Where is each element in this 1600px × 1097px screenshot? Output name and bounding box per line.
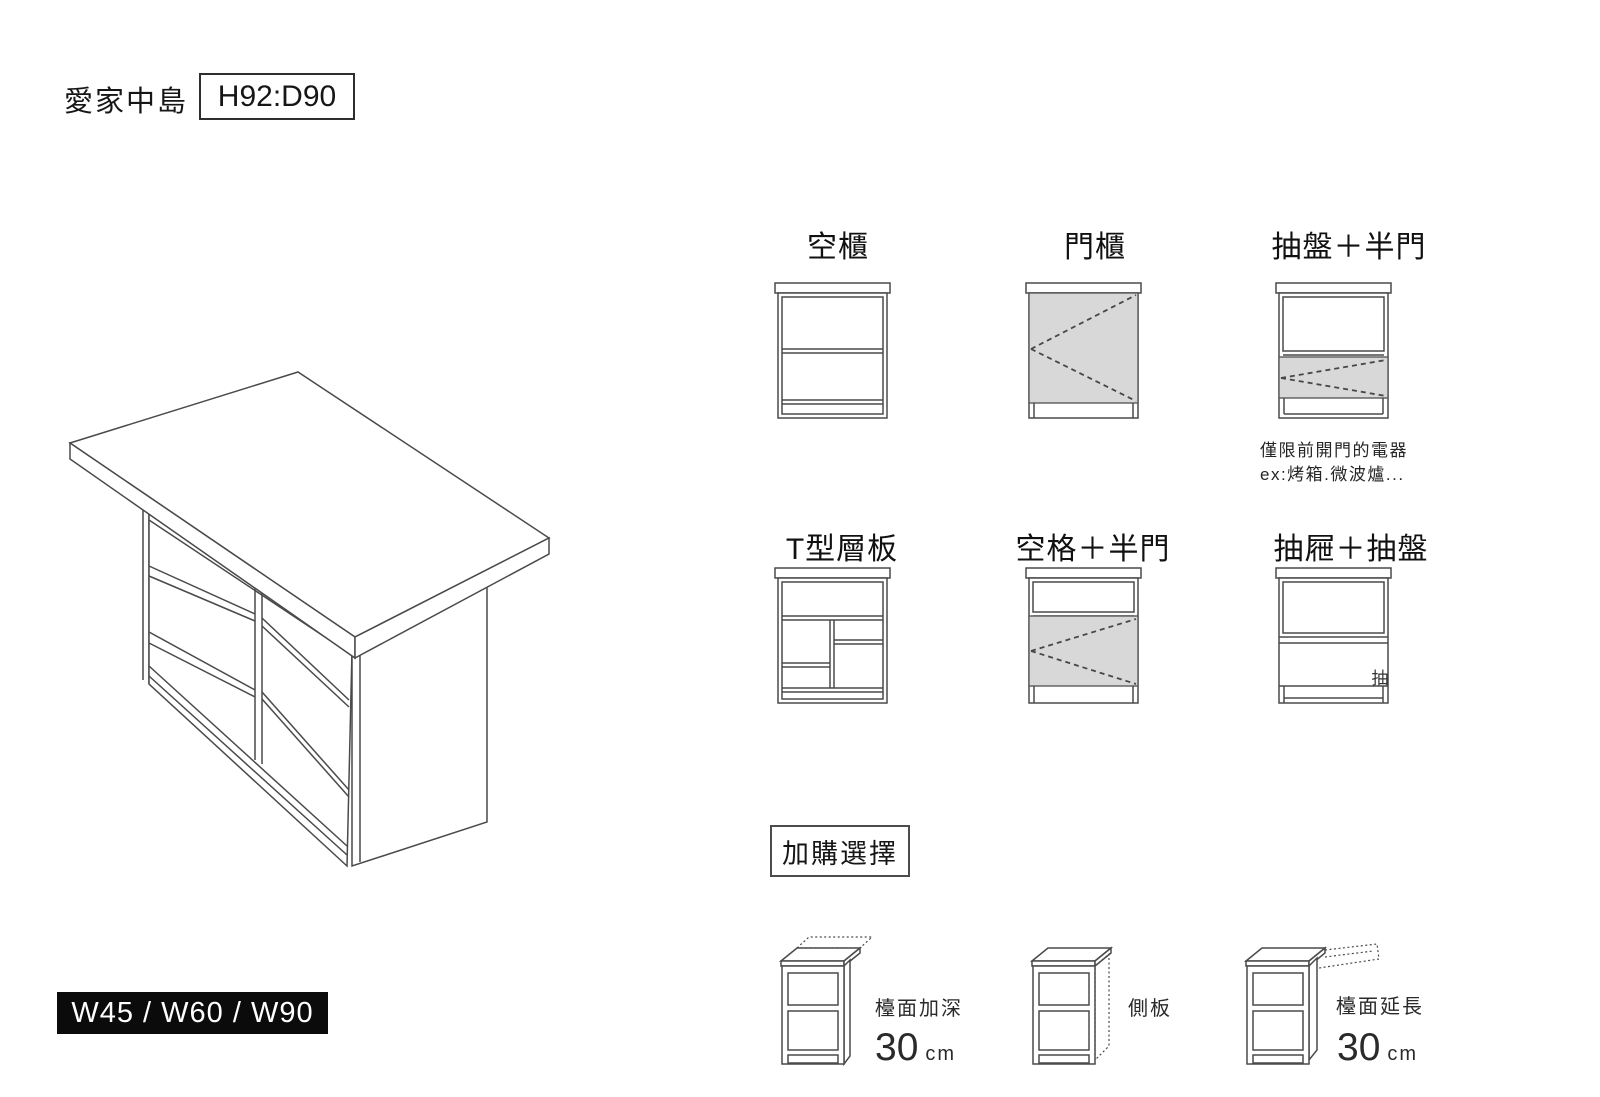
addon-label-deepen: 檯面加深 — [875, 992, 963, 1021]
addon-section-title: 加購選擇 — [782, 832, 898, 871]
drawer-char-label: 抽 — [1372, 669, 1389, 688]
diagram-door-cabinet — [1026, 283, 1141, 418]
addon-deepen-drawing — [781, 937, 872, 1064]
addon-section-box: 加購選擇 — [770, 825, 910, 877]
option-label-door-cabinet: 門櫃 — [1064, 222, 1126, 266]
width-options-label: W45 / W60 / W90 — [71, 997, 313, 1030]
page-title: 愛家中島 — [64, 78, 188, 120]
diagram-tray-half-door — [1276, 283, 1391, 418]
addon-side-panel-drawing — [1032, 948, 1111, 1064]
width-options-badge: W45 / W60 / W90 — [57, 992, 328, 1034]
addon-value-deepen: 30 cm — [875, 1026, 956, 1070]
diagram-drawer-tray: 抽 — [1276, 568, 1391, 703]
option-label-empty-cabinet: 空櫃 — [807, 222, 869, 266]
option-label-t-shelf: T型層板 — [786, 524, 898, 568]
appliance-note-line2: ex:烤箱.微波爐... — [1260, 460, 1405, 485]
addon-label-side-panel: 側板 — [1128, 992, 1172, 1021]
diagram-empty-cabinet — [775, 283, 890, 418]
addon-label-extend: 檯面延長 — [1336, 990, 1424, 1019]
addon-value-extend-number: 30 — [1337, 1026, 1380, 1070]
addon-value-deepen-number: 30 — [875, 1026, 918, 1070]
diagram-gap-half-door — [1026, 568, 1141, 703]
catalog-page: 抽 — [0, 0, 1600, 1097]
diagram-t-shelf — [775, 568, 890, 703]
appliance-note-line1: 僅限前開門的電器 — [1260, 436, 1408, 461]
dimension-label: H92:D90 — [218, 80, 336, 114]
island-drawing — [70, 372, 549, 866]
option-label-tray-half-door: 抽盤＋半門 — [1272, 222, 1427, 266]
addon-value-extend: 30 cm — [1337, 1026, 1418, 1070]
addon-value-deepen-unit: cm — [925, 1043, 956, 1066]
addon-value-extend-unit: cm — [1387, 1043, 1418, 1066]
option-label-drawer-tray: 抽屜＋抽盤 — [1274, 524, 1429, 568]
dimension-box: H92:D90 — [199, 73, 355, 120]
option-label-gap-half-door: 空格＋半門 — [1016, 524, 1171, 568]
